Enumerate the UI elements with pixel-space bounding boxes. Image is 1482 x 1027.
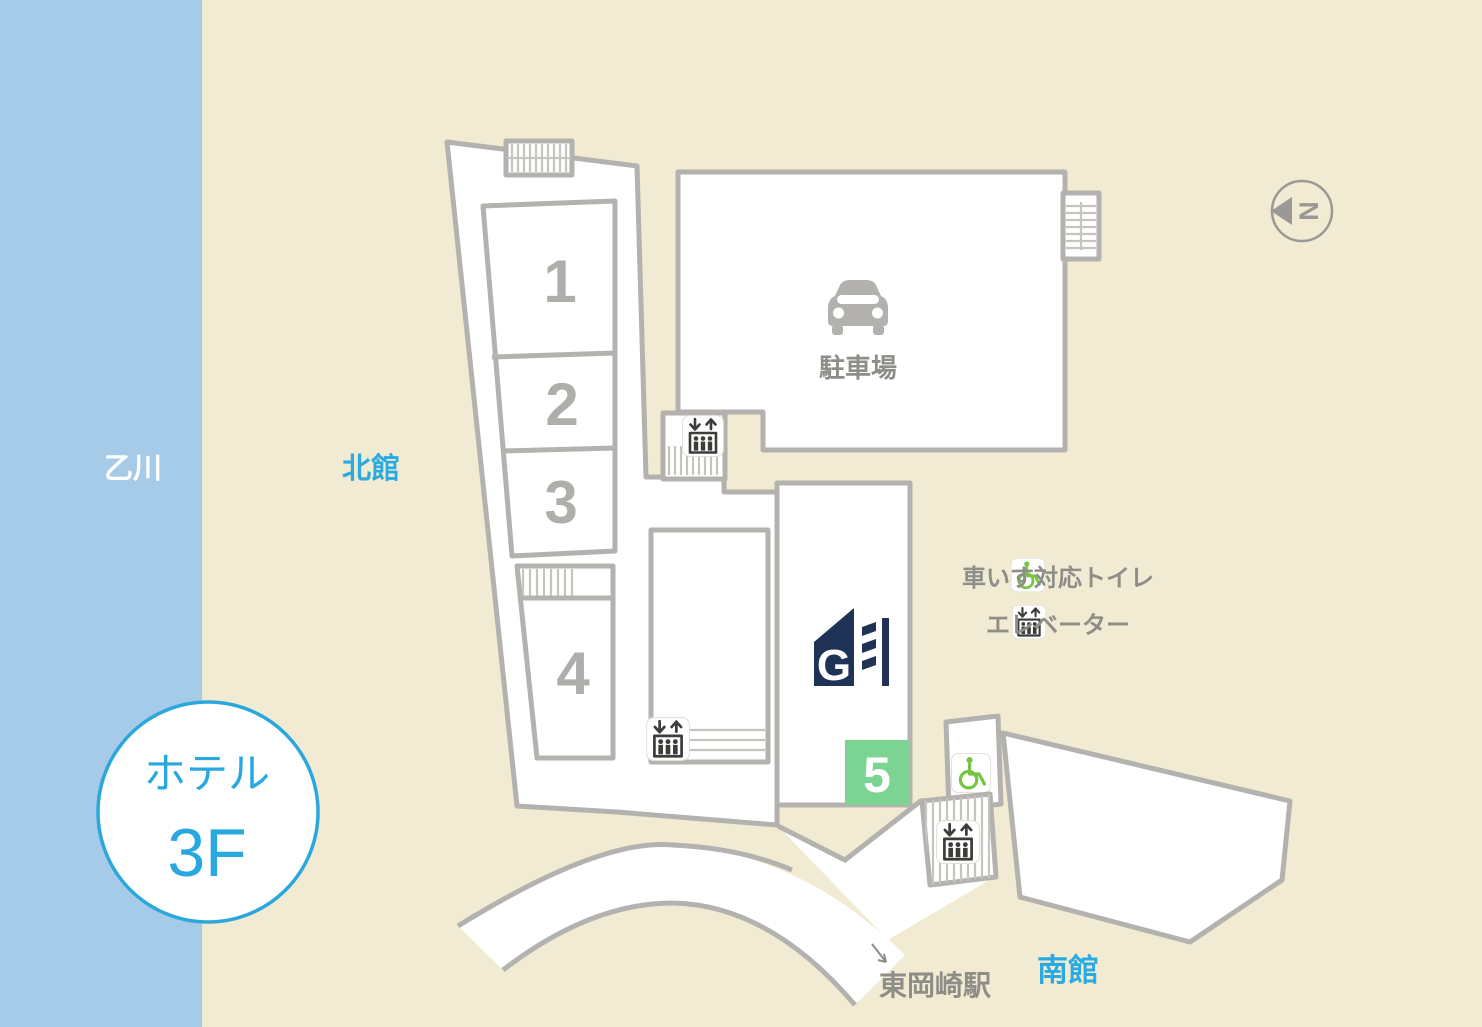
river-label: 乙川 — [104, 453, 162, 485]
logo-letter: G — [817, 641, 851, 690]
compass-north-letter: N — [1294, 201, 1324, 221]
floor-badge: ホテル 3F — [98, 702, 318, 922]
station-label: 東岡崎駅 — [879, 970, 991, 1001]
center-hall — [647, 530, 768, 762]
elevator-icon — [647, 718, 690, 761]
floor-badge-hotel: ホテル — [144, 750, 270, 797]
south-stairs — [922, 790, 996, 890]
room-4-number: 4 — [556, 640, 590, 707]
legend-wheelchair-label: 車いす対応トイレ — [962, 564, 1154, 592]
north-wing-label: 北館 — [342, 451, 400, 485]
parking-label: 駐車場 — [819, 353, 897, 383]
elevator-icon — [683, 416, 724, 457]
elevator-icon — [937, 821, 980, 864]
parking-stairs-east — [1063, 193, 1099, 259]
room-3-number: 3 — [544, 469, 577, 536]
parking-structure: 駐車場 — [678, 172, 1099, 450]
legend-elevator-label: エレベーター — [986, 612, 1130, 639]
south-wing-label: 南館 — [1037, 953, 1099, 988]
room-2-number: 2 — [545, 371, 578, 438]
floor-map: 1 2 3 4 駐車場 — [0, 0, 1482, 1027]
north-stairs-top — [506, 141, 572, 175]
room-1-number: 1 — [543, 248, 576, 315]
north-elevator-landing — [663, 413, 725, 479]
floor-map-page: 1 2 3 4 駐車場 — [0, 0, 1482, 1027]
wheelchair-icon — [951, 753, 990, 792]
hotel-tower: G 5 — [777, 483, 910, 805]
room-5-number: 5 — [863, 747, 891, 803]
floor-badge-floor: 3F — [167, 815, 246, 891]
